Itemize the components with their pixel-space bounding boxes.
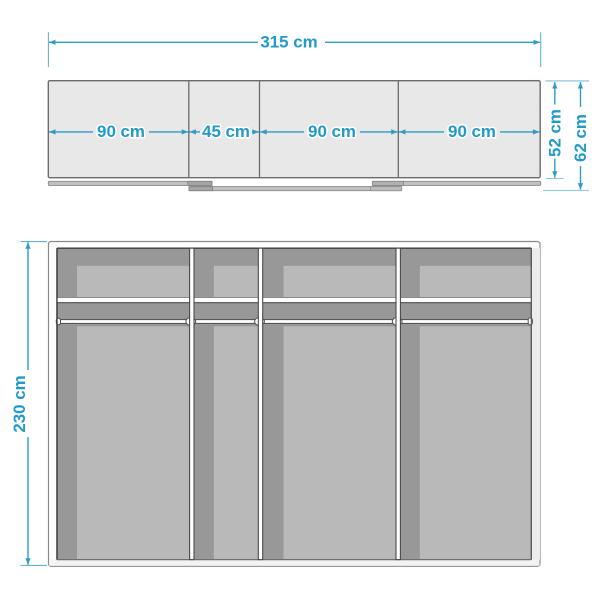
- svg-text:315 cm: 315 cm: [260, 32, 317, 51]
- svg-text:90 cm: 90 cm: [448, 122, 496, 141]
- svg-text:90 cm: 90 cm: [97, 122, 145, 141]
- svg-text:90 cm: 90 cm: [308, 122, 356, 141]
- svg-text:45 cm: 45 cm: [202, 122, 250, 141]
- svg-text:230 cm: 230 cm: [10, 375, 29, 432]
- svg-text:52 cm: 52 cm: [545, 109, 564, 157]
- svg-text:62 cm: 62 cm: [571, 114, 590, 162]
